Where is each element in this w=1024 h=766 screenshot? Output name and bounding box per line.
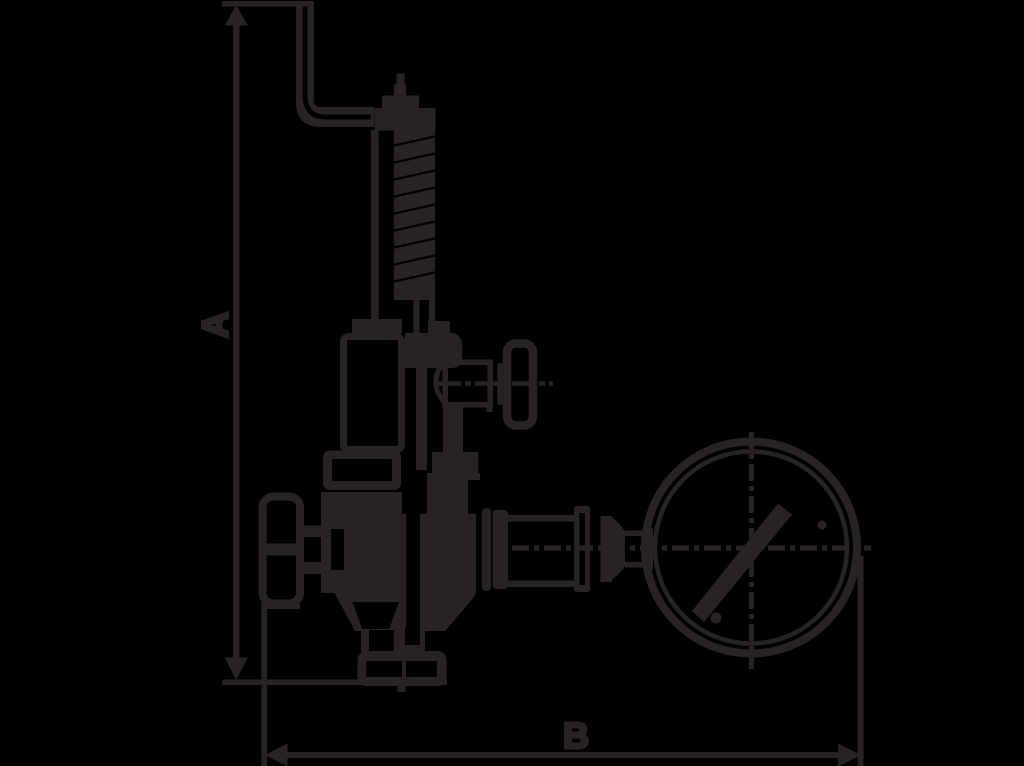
svg-text:A: A (195, 312, 236, 338)
svg-text:B: B (563, 715, 589, 756)
